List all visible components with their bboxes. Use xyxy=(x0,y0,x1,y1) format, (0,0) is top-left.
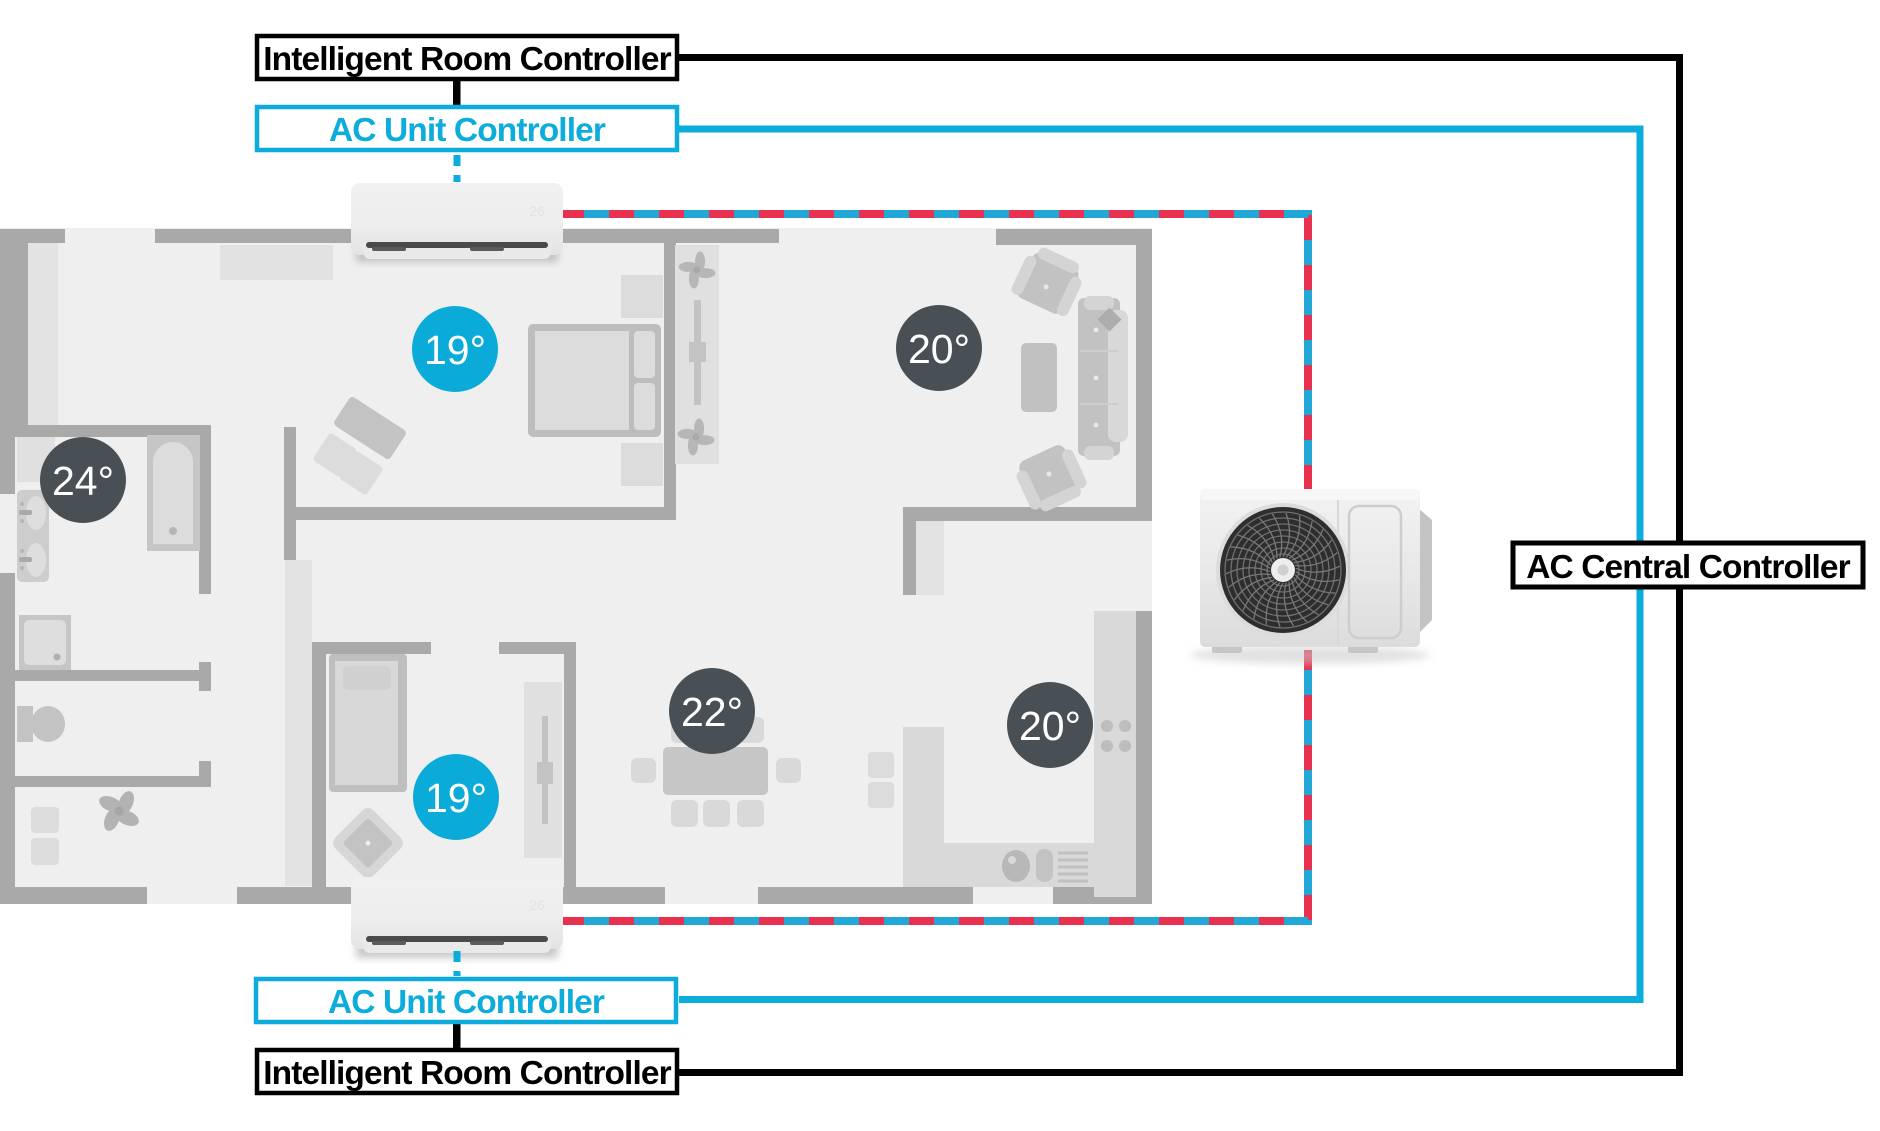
svg-text:26: 26 xyxy=(529,203,545,219)
svg-text:AC Unit Controller: AC Unit Controller xyxy=(329,112,606,149)
svg-text:26: 26 xyxy=(529,897,545,913)
svg-text:Intelligent Room Controller: Intelligent Room Controller xyxy=(263,41,671,78)
svg-text:20°: 20° xyxy=(908,326,970,372)
svg-text:19°: 19° xyxy=(424,327,486,373)
svg-text:Intelligent Room Controller: Intelligent Room Controller xyxy=(263,1055,671,1092)
svg-text:20°: 20° xyxy=(1019,703,1081,749)
svg-text:19°: 19° xyxy=(425,775,487,821)
svg-text:AC Unit Controller: AC Unit Controller xyxy=(328,984,605,1021)
svg-text:AC Central Controller: AC Central Controller xyxy=(1526,549,1850,586)
svg-text:24°: 24° xyxy=(52,458,114,504)
svg-text:22°: 22° xyxy=(681,689,743,735)
